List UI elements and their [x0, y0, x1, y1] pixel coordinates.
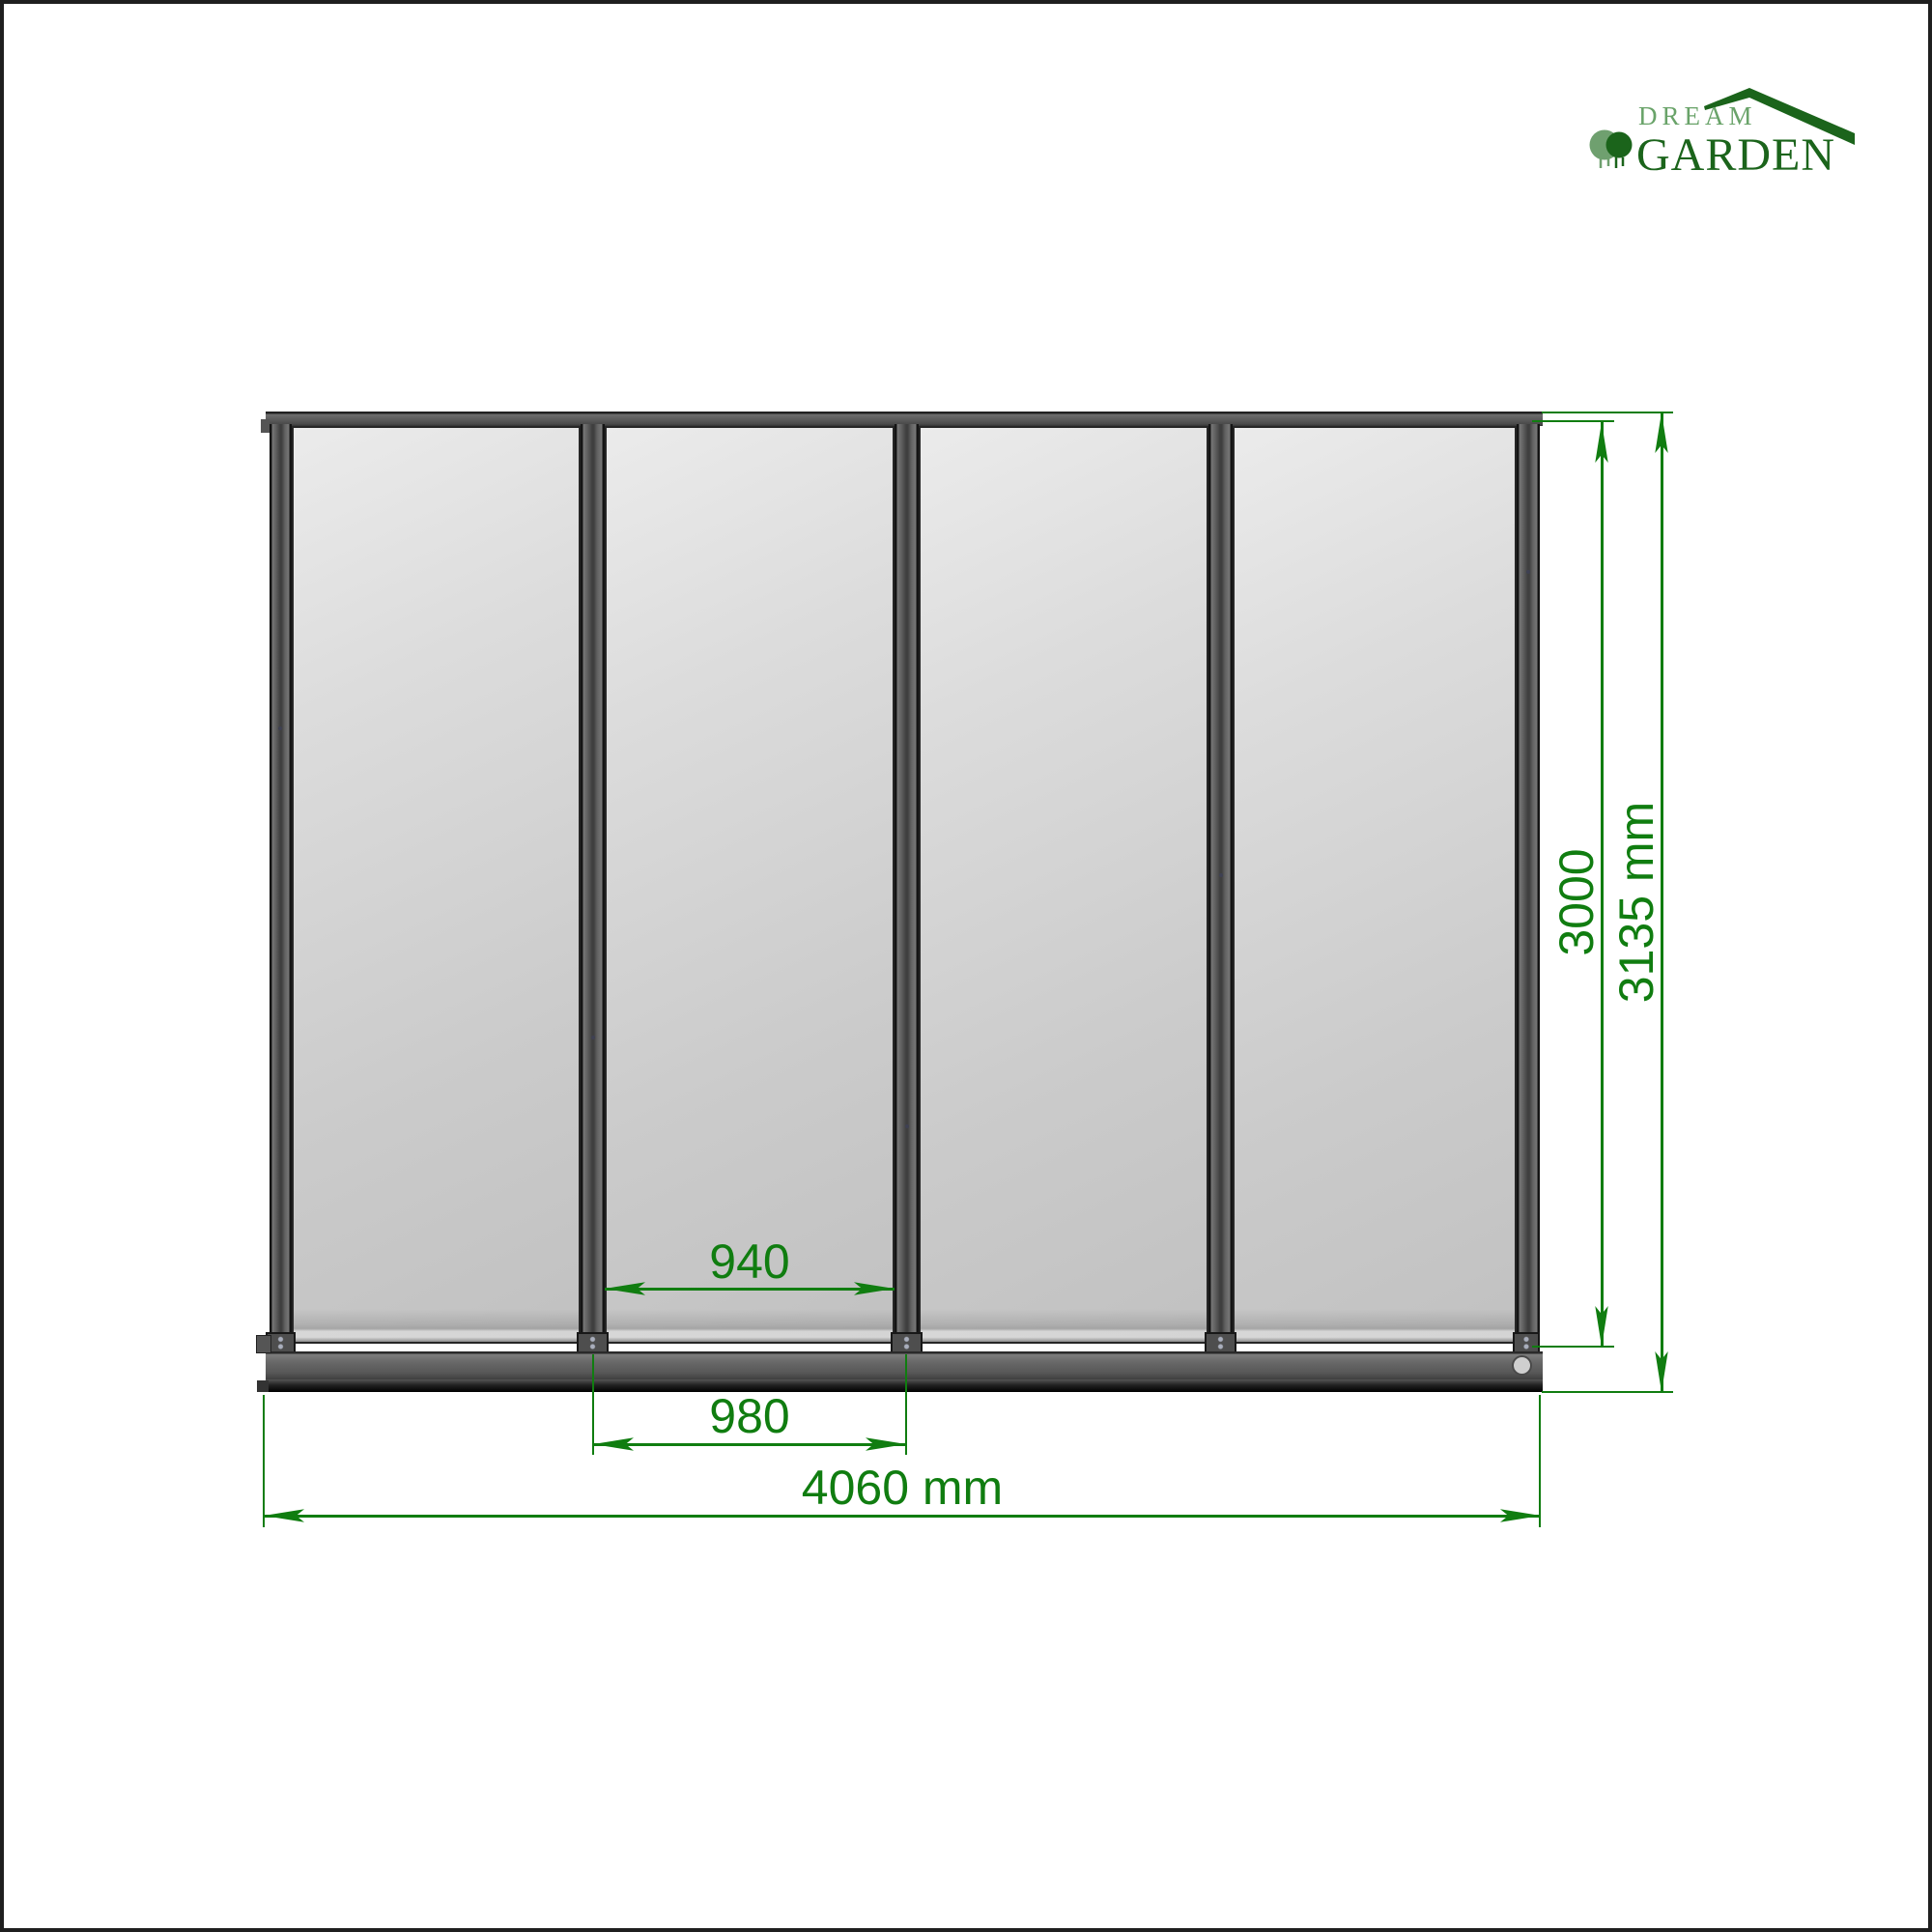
- extension-line: [1542, 412, 1673, 413]
- mullion-1: [581, 424, 605, 1351]
- dim-4060-label: 4060 mm: [264, 1463, 1541, 1512]
- logo-dream-text: DREAM: [1638, 101, 1757, 130]
- drain-cap: [1512, 1355, 1532, 1376]
- post-bracket: [577, 1332, 609, 1353]
- extension-line: [1542, 1391, 1673, 1393]
- post-bracket: [891, 1332, 923, 1353]
- hinge-nub: [256, 1335, 271, 1353]
- screw-dot: [591, 1036, 595, 1039]
- dim-3135-label: 3135 mm: [1610, 709, 1662, 1095]
- frame-left-post: [270, 424, 292, 1351]
- screw-dot: [278, 726, 282, 730]
- glass-panel-4: [1233, 426, 1517, 1344]
- screw-dot: [905, 1124, 909, 1128]
- logo-garden-text: GARDEN: [1636, 129, 1835, 181]
- dim-940-label: 940: [605, 1237, 895, 1286]
- dim-980-label: 980: [593, 1392, 906, 1440]
- dim-3000-label: 3000: [1550, 709, 1603, 1095]
- hinge-nub: [257, 1380, 269, 1392]
- glass-panel-1: [292, 426, 581, 1344]
- mullion-3: [1208, 424, 1233, 1351]
- frame-right-post: [1517, 424, 1540, 1351]
- glass-panel-3: [919, 426, 1208, 1344]
- screw-dot: [1219, 873, 1223, 877]
- bottom-trim: [266, 1379, 1543, 1392]
- dim-4060-line: [264, 1515, 1541, 1518]
- mullion-2: [895, 424, 919, 1351]
- logo-graphic: DREAM GARDEN: [1578, 73, 1868, 182]
- dim-980-line: [593, 1443, 906, 1446]
- post-bracket: [1205, 1332, 1236, 1353]
- post-bracket: [1513, 1332, 1540, 1353]
- frame-bottom-rail: [266, 1351, 1543, 1379]
- brand-logo: DREAM GARDEN: [1578, 73, 1868, 182]
- drawing-canvas: DREAM GARDEN 940 980 4060 mm: [0, 0, 1932, 1932]
- tree-icon: [1590, 130, 1633, 169]
- screw-dot: [1526, 570, 1530, 574]
- hinge-nub: [261, 419, 270, 433]
- glass-panel-2: [605, 426, 895, 1344]
